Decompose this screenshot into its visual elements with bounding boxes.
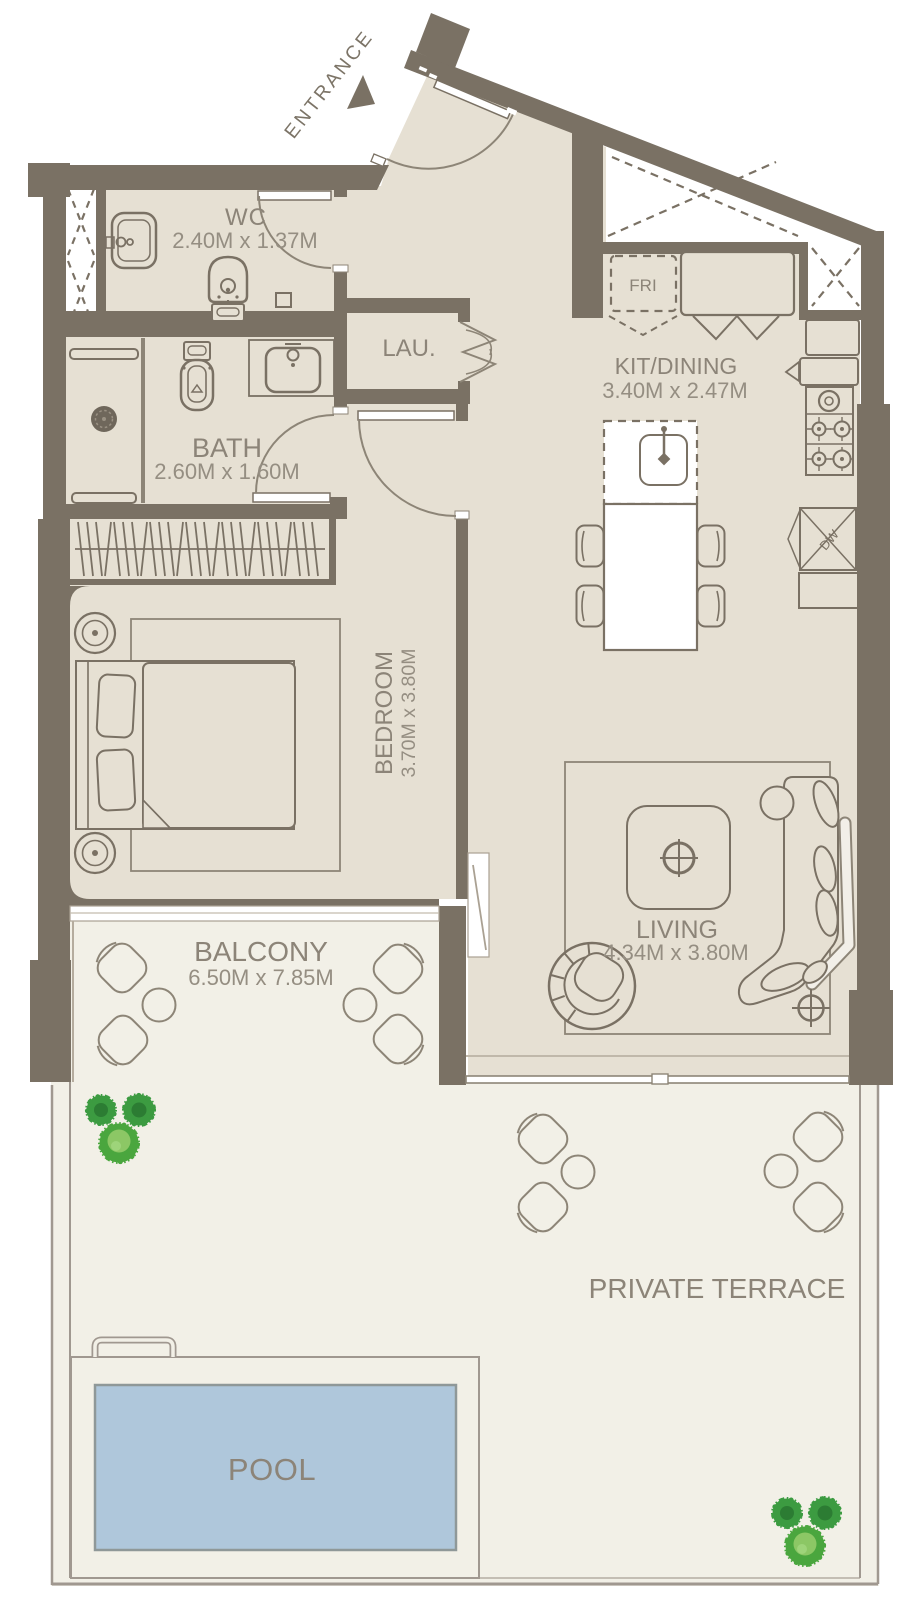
svg-text:FRI: FRI bbox=[629, 276, 656, 295]
svg-text:BEDROOM: BEDROOM bbox=[371, 651, 398, 775]
svg-text:WC: WC bbox=[225, 204, 267, 231]
svg-text:PRIVATE TERRACE: PRIVATE TERRACE bbox=[589, 1273, 846, 1304]
svg-text:4.34M x 3.80M: 4.34M x 3.80M bbox=[603, 940, 749, 965]
svg-text:BALCONY: BALCONY bbox=[194, 936, 328, 967]
svg-text:6.50M x 7.85M: 6.50M x 7.85M bbox=[188, 965, 334, 990]
svg-text:KIT/DINING: KIT/DINING bbox=[615, 353, 738, 379]
svg-text:2.60M x 1.60M: 2.60M x 1.60M bbox=[154, 459, 300, 484]
svg-text:2.40M x 1.37M: 2.40M x 1.37M bbox=[172, 228, 318, 253]
svg-text:LAU.: LAU. bbox=[382, 335, 435, 362]
svg-text:3.40M x 2.47M: 3.40M x 2.47M bbox=[602, 378, 748, 403]
svg-text:3.70M x 3.80M: 3.70M x 3.80M bbox=[398, 649, 420, 778]
svg-text:POOL: POOL bbox=[228, 1452, 316, 1487]
